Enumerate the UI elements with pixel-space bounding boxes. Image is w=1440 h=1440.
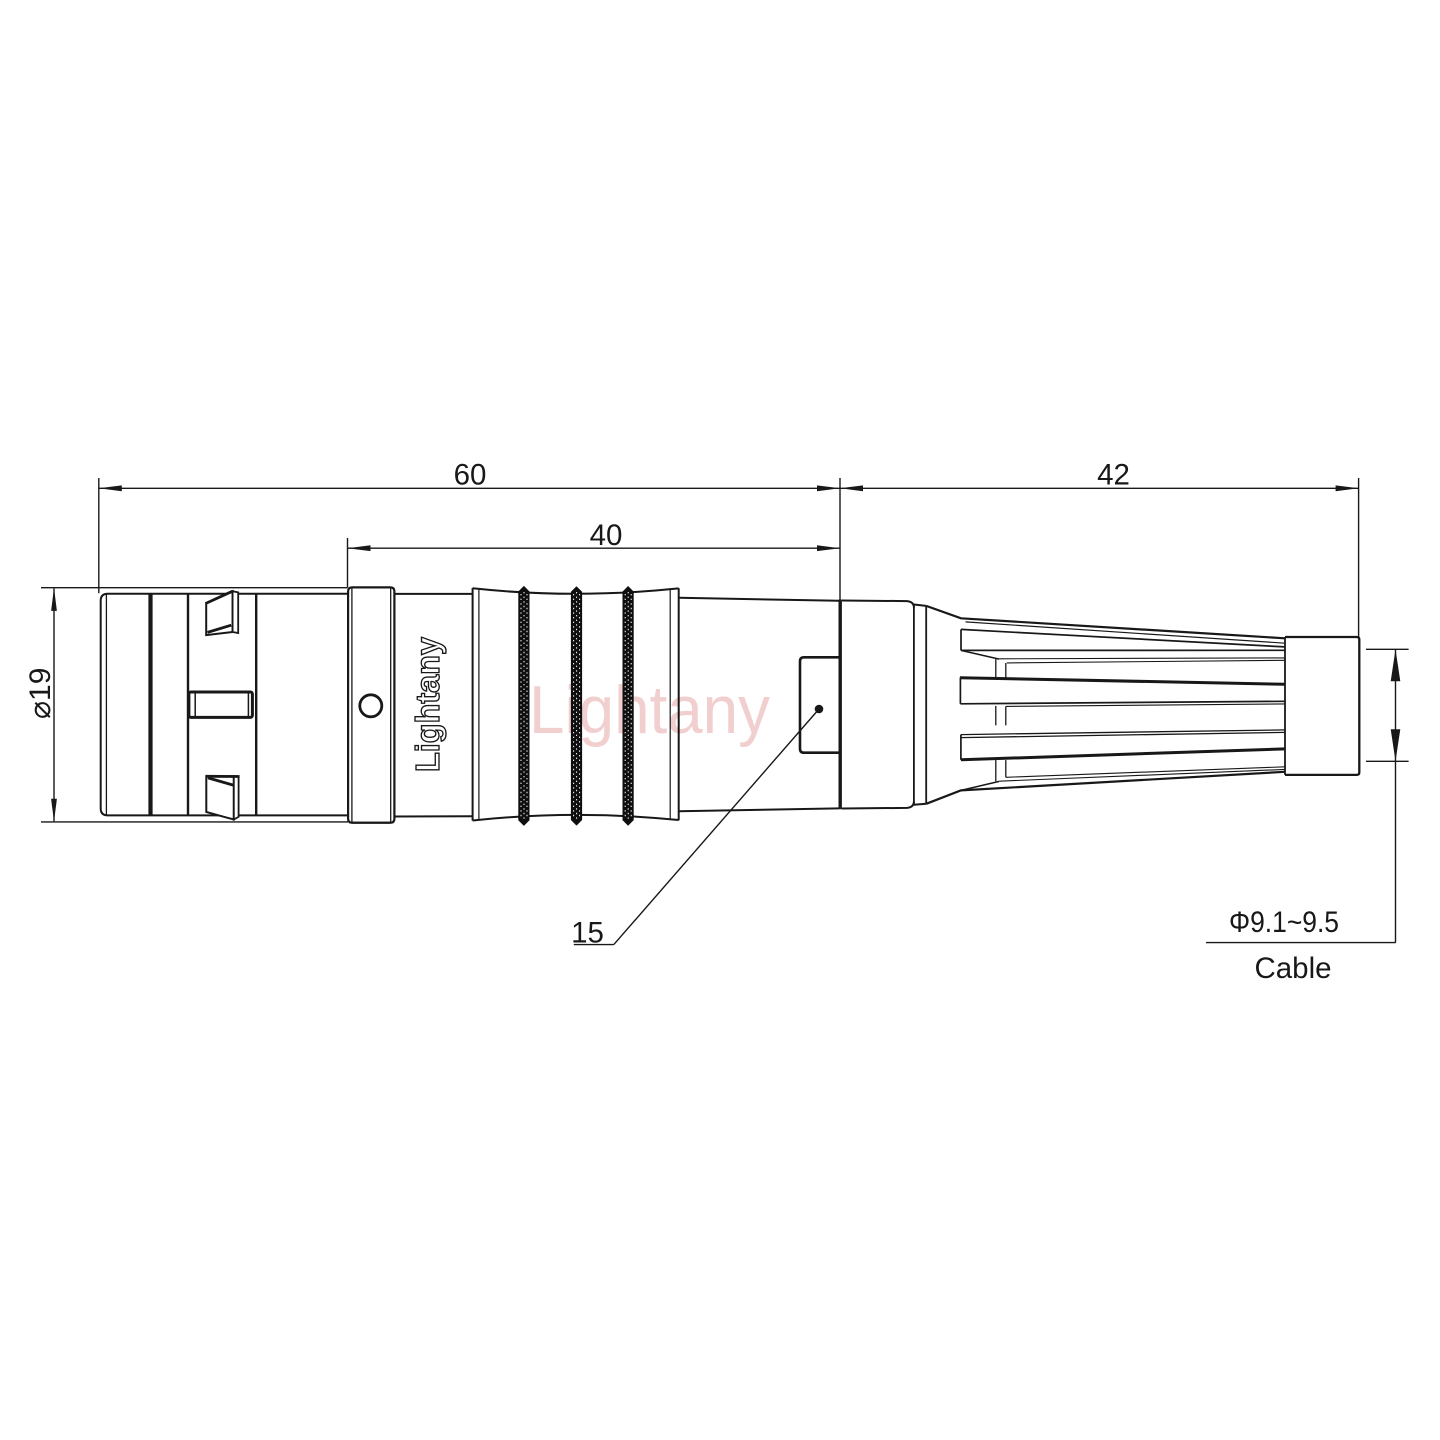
svg-text:Lightany: Lightany [529, 672, 770, 748]
svg-text:Lightany: Lightany [409, 636, 446, 772]
svg-text:42: 42 [1097, 459, 1130, 492]
svg-text:Cable: Cable [1254, 952, 1331, 985]
svg-text:40: 40 [590, 519, 623, 552]
svg-text:60: 60 [454, 459, 487, 492]
svg-text:Φ9.1~9.5: Φ9.1~9.5 [1229, 906, 1339, 939]
svg-text:⌀19: ⌀19 [24, 668, 57, 719]
